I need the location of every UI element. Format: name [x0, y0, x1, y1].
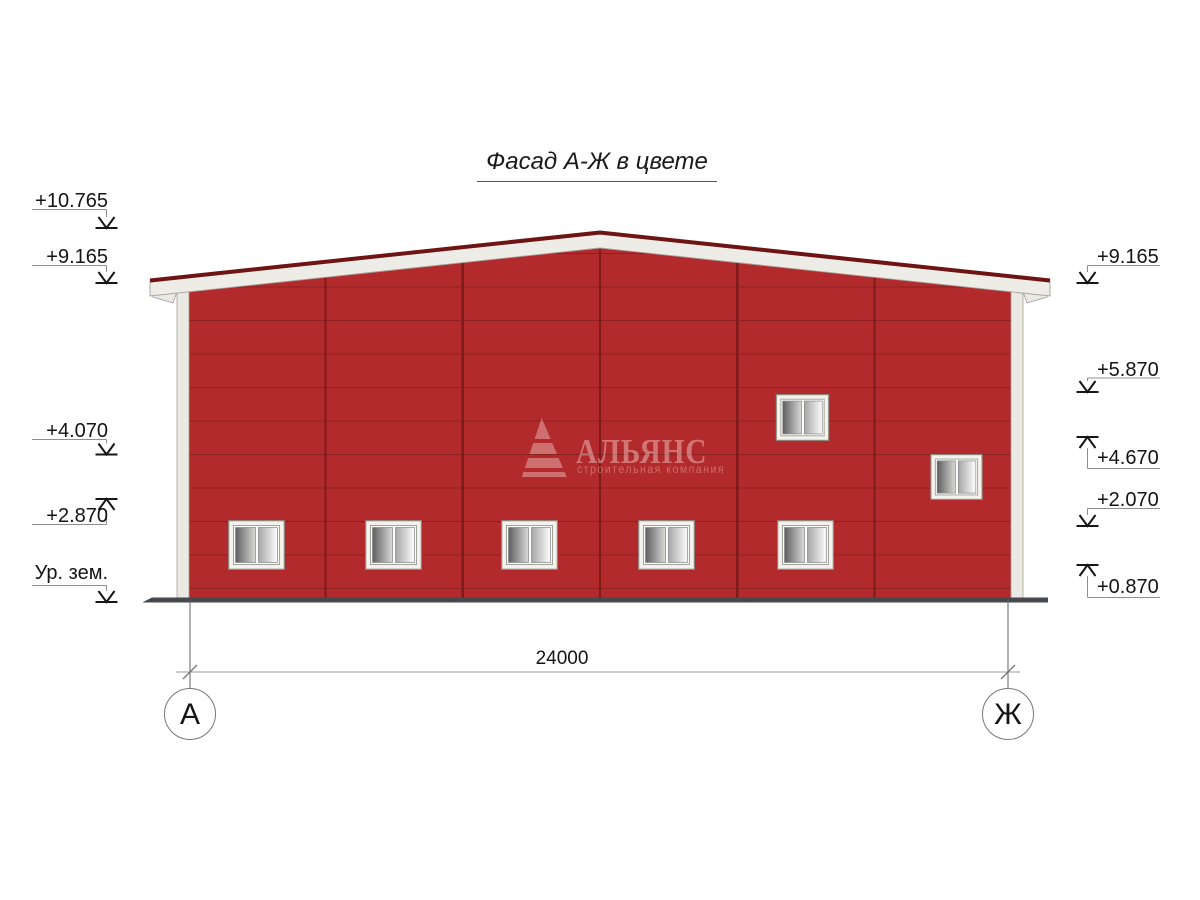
level-label-ground: Ур. зем. [35, 562, 108, 585]
level-arrow-down [99, 444, 115, 455]
watermark-tagline: строительная компания [577, 464, 725, 476]
level-label: +2.870 [46, 505, 108, 528]
corner-trim-left [177, 290, 189, 598]
window-upper [776, 395, 828, 441]
level-label: +4.070 [46, 420, 108, 443]
level-arrow-down [99, 591, 115, 602]
drawing-title: Фасад А-Ж в цвете [477, 148, 717, 182]
ground-line [143, 598, 1048, 603]
level-arrow-down [1080, 381, 1096, 392]
window-mid-right [931, 455, 982, 500]
window [502, 521, 558, 570]
axis-label-right: Ж [994, 698, 1022, 731]
level-label: +2.070 [1097, 489, 1159, 512]
level-arrow-down [99, 272, 115, 283]
facade-drawing-sheet: А Ж Фасад А-Ж в цвете +10.765 +9.165 +4.… [0, 0, 1200, 900]
window [229, 521, 285, 570]
window [639, 521, 695, 570]
level-label: +5.870 [1097, 359, 1159, 382]
level-arrow-down [1080, 272, 1096, 283]
building-facade [177, 240, 1023, 598]
level-label: +0.870 [1097, 576, 1159, 599]
axis-label-left: А [180, 698, 200, 731]
window [366, 521, 422, 570]
level-label: +9.165 [1097, 246, 1159, 269]
level-label: +4.670 [1097, 447, 1159, 470]
window [778, 521, 834, 570]
dimension-value: 24000 [512, 648, 612, 670]
level-arrow-up [1080, 565, 1096, 576]
level-label: +9.165 [46, 246, 108, 269]
level-label: +10.765 [35, 190, 108, 213]
level-arrow-down [99, 217, 115, 228]
corner-trim-right [1011, 290, 1023, 598]
level-arrow-down [1080, 515, 1096, 526]
level-arrow-up [1080, 437, 1096, 448]
